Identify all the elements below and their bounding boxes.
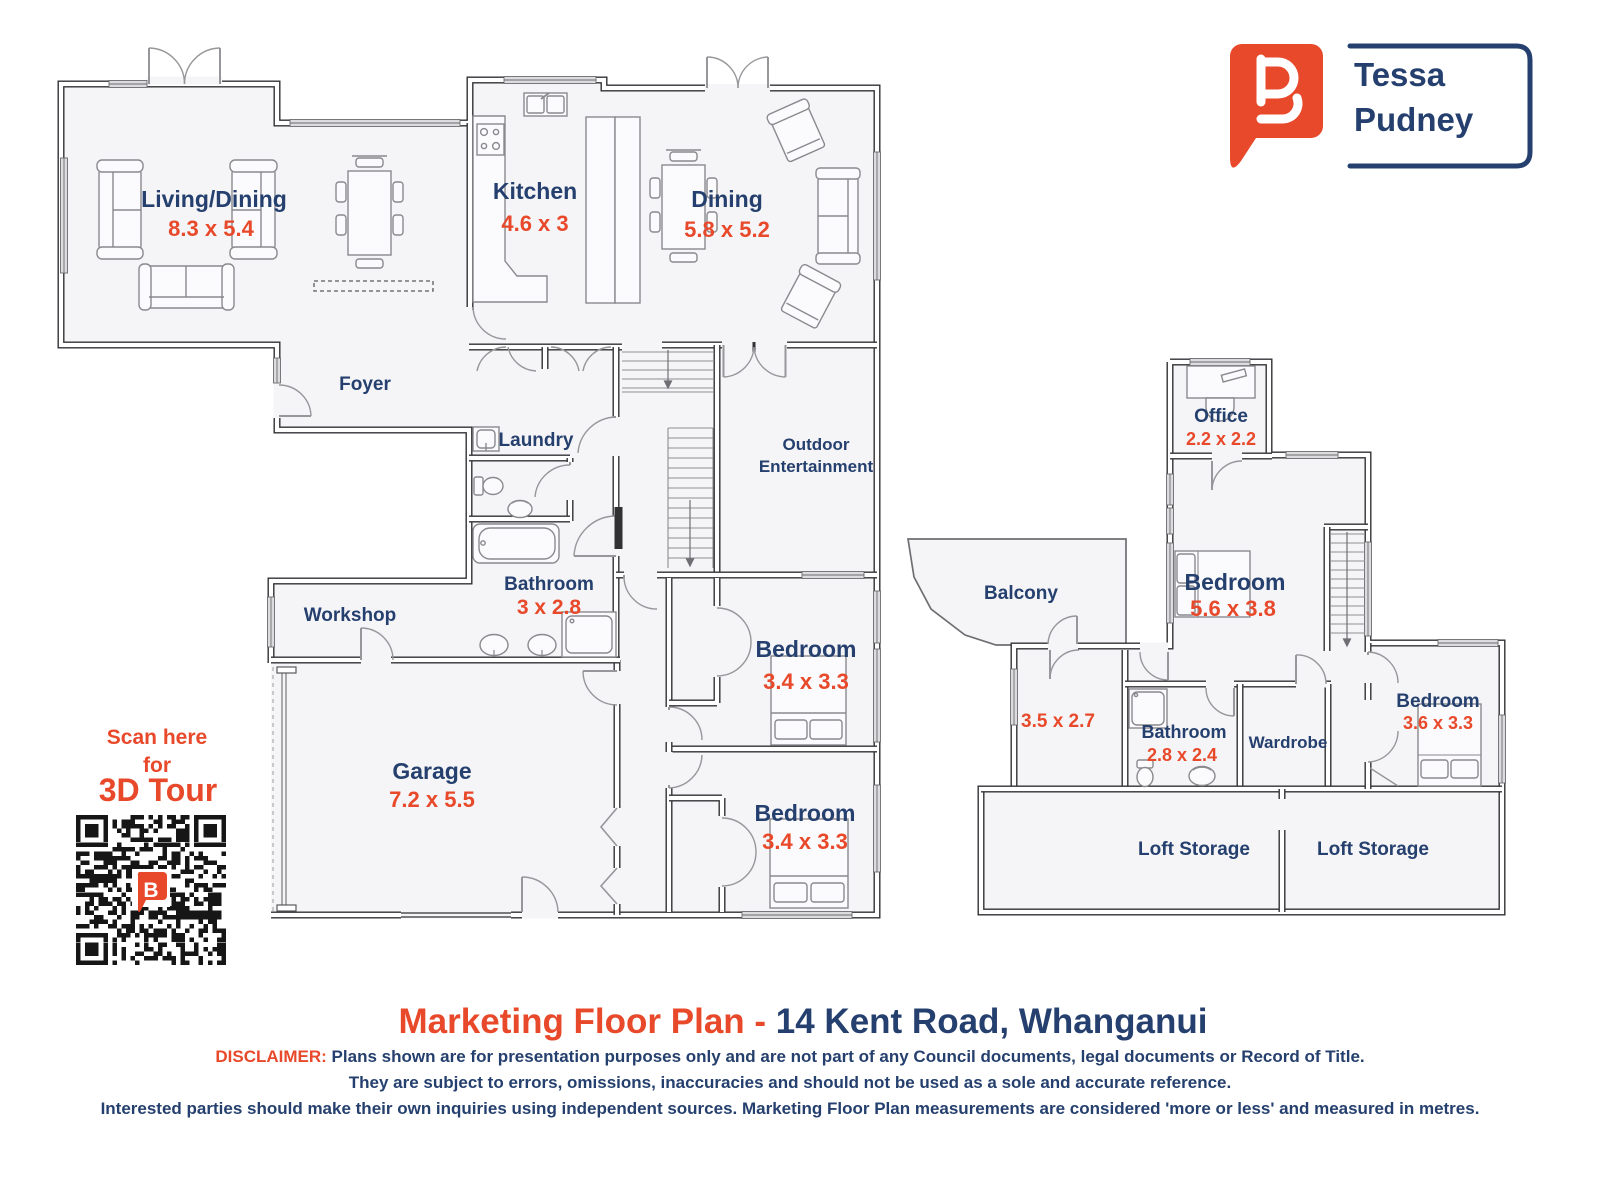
- svg-text:Interested parties should make: Interested parties should make their own…: [101, 1099, 1480, 1118]
- svg-text:Bedroom: Bedroom: [1185, 569, 1286, 595]
- svg-text:Garage: Garage: [392, 758, 471, 784]
- svg-text:Workshop: Workshop: [304, 605, 397, 626]
- svg-text:Bathroom: Bathroom: [504, 574, 594, 595]
- svg-text:Bedroom: Bedroom: [756, 636, 857, 662]
- svg-text:Office: Office: [1194, 406, 1248, 427]
- svg-text:Loft Storage: Loft Storage: [1138, 839, 1250, 860]
- svg-text:Entertainment: Entertainment: [759, 457, 874, 476]
- svg-text:8.3 x 5.4: 8.3 x 5.4: [168, 216, 254, 241]
- svg-text:3.5 x 2.7: 3.5 x 2.7: [1021, 711, 1095, 732]
- svg-text:Bedroom: Bedroom: [1396, 691, 1479, 712]
- svg-text:5.8 x 5.2: 5.8 x 5.2: [684, 217, 770, 242]
- svg-text:3D Tour: 3D Tour: [99, 772, 218, 808]
- svg-text:They are subject to errors, om: They are subject to errors, omissions, i…: [349, 1073, 1231, 1092]
- svg-text:5.6 x 3.8: 5.6 x 3.8: [1190, 596, 1276, 621]
- svg-text:Wardrobe: Wardrobe: [1249, 733, 1328, 752]
- svg-text:Pudney: Pudney: [1354, 101, 1474, 138]
- svg-text:7.2 x 5.5: 7.2 x 5.5: [389, 787, 475, 812]
- svg-text:Tessa: Tessa: [1354, 56, 1446, 93]
- svg-text:Bedroom: Bedroom: [755, 800, 856, 826]
- svg-text:3.4 x 3.3: 3.4 x 3.3: [762, 829, 848, 854]
- svg-text:Foyer: Foyer: [339, 374, 391, 395]
- svg-text:Kitchen: Kitchen: [493, 178, 577, 204]
- svg-text:Loft Storage: Loft Storage: [1317, 839, 1429, 860]
- svg-text:2.8 x 2.4: 2.8 x 2.4: [1147, 745, 1217, 765]
- svg-text:3.4 x 3.3: 3.4 x 3.3: [763, 669, 849, 694]
- svg-text:2.2 x 2.2: 2.2 x 2.2: [1186, 429, 1256, 449]
- svg-text:Outdoor: Outdoor: [782, 435, 849, 454]
- svg-text:B: B: [143, 879, 158, 902]
- svg-text:Dining: Dining: [691, 186, 763, 212]
- svg-text:DISCLAIMER: Plans shown are f: DISCLAIMER: Plans shown are for presenta…: [215, 1047, 1364, 1066]
- svg-text:3 x 2.8: 3 x 2.8: [517, 596, 582, 619]
- svg-text:Balcony: Balcony: [984, 583, 1058, 604]
- svg-text:4.6 x 3: 4.6 x 3: [501, 211, 568, 236]
- svg-text:Marketing Floor Plan - 14 Kent: Marketing Floor Plan - 14 Kent Road, Wha…: [399, 1002, 1208, 1041]
- svg-text:Living/Dining: Living/Dining: [141, 186, 287, 212]
- svg-text:Bathroom: Bathroom: [1142, 722, 1227, 742]
- svg-text:Laundry: Laundry: [499, 430, 574, 451]
- svg-text:3.6 x 3.3: 3.6 x 3.3: [1403, 713, 1473, 733]
- svg-text:Scan here: Scan here: [107, 726, 207, 749]
